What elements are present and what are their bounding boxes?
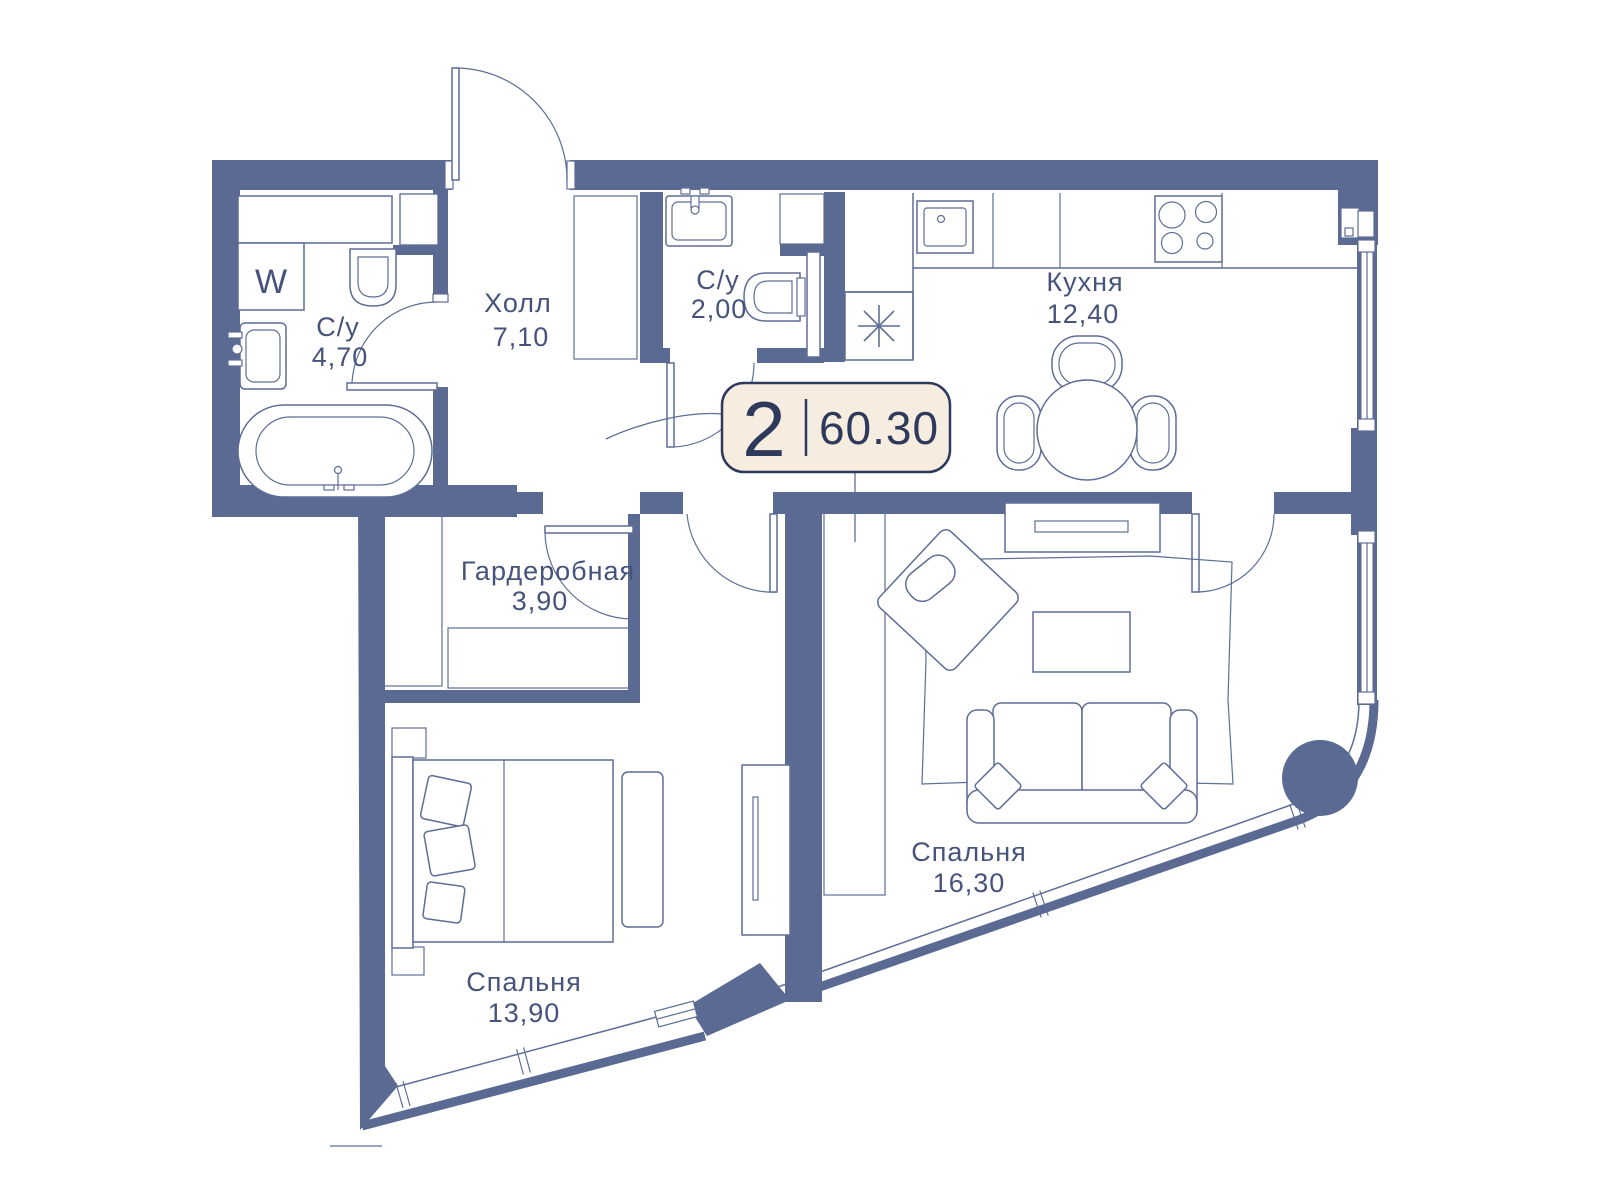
badge-area-value: 60.30: [819, 402, 939, 454]
shaft-hatch: [400, 194, 438, 245]
bench: [622, 772, 663, 927]
room-area: 4,70: [312, 342, 369, 372]
sink-2: [666, 188, 732, 246]
room-area: 16,30: [933, 868, 1006, 898]
bedroom-1-door: [687, 514, 777, 592]
room-label: Спальня: [466, 967, 582, 997]
room-area: 13,90: [488, 998, 561, 1028]
entrance-door: [445, 68, 575, 189]
bathtub: [238, 405, 432, 497]
room-label: Гардеробная: [461, 556, 635, 586]
coffee-table: [1033, 612, 1130, 672]
badge: 2 60.30: [606, 383, 950, 542]
nightstand: [392, 947, 424, 975]
dining-set: [997, 336, 1176, 480]
stove: [1155, 196, 1222, 262]
toilet: [350, 249, 396, 306]
wc-partition: [807, 252, 820, 357]
room-wardrobe: Гардеробная 3,90: [461, 556, 635, 616]
room-hall: Холл 7,10: [484, 288, 552, 352]
nightstand: [392, 728, 426, 758]
wardrobe-rail: [448, 628, 630, 688]
room-label: Холл: [484, 288, 552, 318]
floor-plan: W С/у 4,70 С/у 2,00: [0, 0, 1600, 1200]
tv-console: [1005, 503, 1160, 552]
room-label: С/у: [316, 312, 360, 342]
room-label: С/у: [696, 265, 740, 295]
shaft-hatch-2: [780, 194, 824, 244]
hall-closet: [574, 196, 637, 359]
fridge-star-icon: [858, 305, 900, 347]
badge-rooms-count: 2: [742, 385, 785, 473]
bedroom-2-door: [1192, 514, 1274, 592]
radiator: [655, 1001, 698, 1027]
living-closet: [824, 506, 885, 895]
washer-label: W: [255, 263, 287, 301]
room-area: 7,10: [493, 322, 550, 352]
room-area: 2,00: [691, 294, 748, 324]
dining-table: [1037, 380, 1137, 480]
room-label: Спальня: [911, 837, 1027, 867]
bed: [392, 757, 613, 948]
armchair: [875, 527, 1022, 674]
room-area: 12,40: [1047, 299, 1120, 329]
room-label: Кухня: [1046, 267, 1123, 297]
floor-plan-page: W С/у 4,70 С/у 2,00: [0, 0, 1600, 1200]
dresser: [742, 765, 790, 935]
wardrobe-shelves: [384, 504, 442, 686]
kitchen-sink: [917, 201, 973, 253]
bath-counter: [238, 196, 392, 243]
room-bedroom-2: Спальня 16,30: [875, 503, 1233, 898]
room-bathroom-guest: С/у 2,00: [666, 188, 820, 357]
room-area: 3,90: [512, 586, 569, 616]
sofa: [967, 703, 1197, 823]
toilet-2: [744, 273, 805, 321]
